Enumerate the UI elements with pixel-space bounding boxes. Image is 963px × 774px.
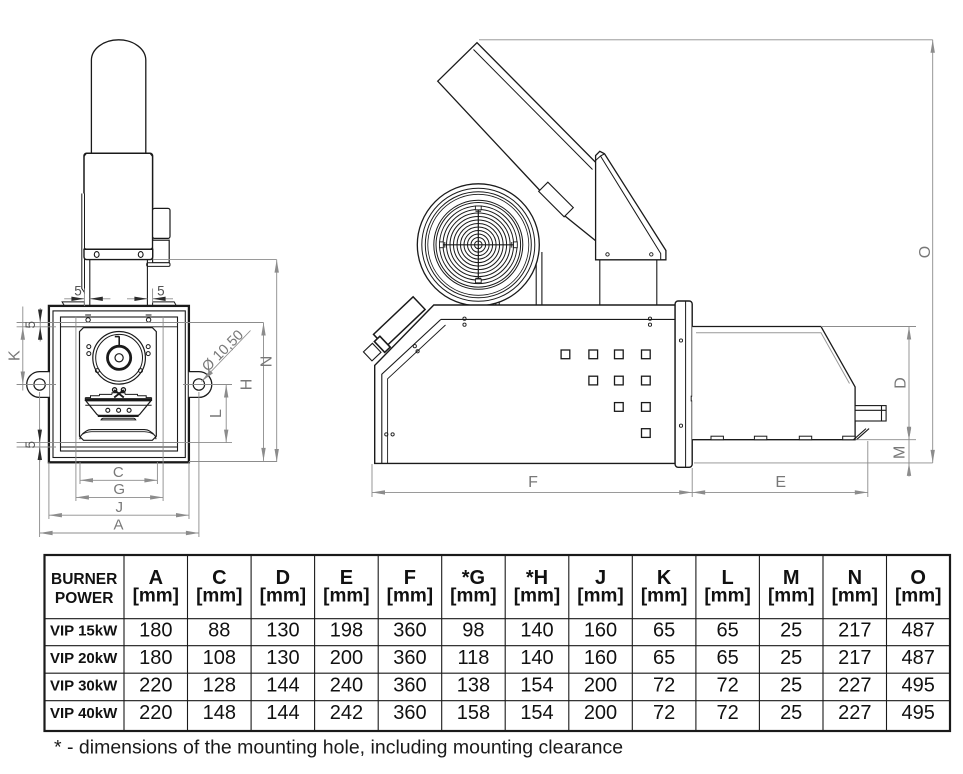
svg-text:[mm]: [mm]	[387, 586, 433, 607]
svg-text:180: 180	[139, 620, 172, 642]
svg-text:[mm]: [mm]	[832, 586, 878, 607]
svg-text:144: 144	[266, 674, 299, 696]
svg-text:[mm]: [mm]	[704, 586, 750, 607]
svg-text:242: 242	[330, 702, 363, 724]
svg-text:118: 118	[457, 647, 489, 669]
svg-text:200: 200	[584, 702, 617, 724]
svg-text:128: 128	[203, 674, 236, 696]
svg-text:65: 65	[716, 620, 738, 642]
svg-text:[mm]: [mm]	[768, 586, 814, 607]
svg-text:140: 140	[520, 620, 553, 642]
svg-text:72: 72	[653, 674, 675, 696]
svg-text:25: 25	[780, 674, 802, 696]
svg-text:M: M	[892, 446, 909, 459]
svg-text:E: E	[775, 474, 786, 491]
svg-text:[mm]: [mm]	[895, 586, 941, 607]
svg-text:360: 360	[393, 702, 426, 724]
svg-text:72: 72	[653, 702, 675, 724]
svg-text:130: 130	[266, 620, 299, 642]
svg-text:A: A	[113, 517, 123, 534]
svg-text:154: 154	[520, 674, 553, 696]
svg-text:VIP 20kW: VIP 20kW	[50, 650, 118, 667]
svg-text:F: F	[528, 474, 538, 491]
svg-text:72: 72	[716, 702, 738, 724]
svg-text:BURNER: BURNER	[51, 571, 117, 588]
svg-text:POWER: POWER	[55, 590, 114, 607]
svg-text:360: 360	[393, 647, 426, 669]
svg-text:5: 5	[23, 321, 38, 329]
svg-text:VIP 15kW: VIP 15kW	[50, 623, 118, 640]
svg-text:227: 227	[838, 674, 871, 696]
svg-text:[mm]: [mm]	[323, 586, 369, 607]
svg-text:[mm]: [mm]	[133, 586, 179, 607]
svg-text:L: L	[208, 409, 225, 418]
svg-text:160: 160	[584, 647, 617, 669]
svg-text:[mm]: [mm]	[196, 586, 242, 607]
svg-text:144: 144	[266, 702, 299, 724]
svg-text:160: 160	[584, 620, 617, 642]
svg-text:5: 5	[157, 284, 165, 299]
svg-text:VIP 40kW: VIP 40kW	[50, 705, 118, 722]
svg-text:[mm]: [mm]	[260, 586, 306, 607]
svg-text:495: 495	[902, 702, 935, 724]
svg-text:98: 98	[462, 620, 484, 642]
svg-text:487: 487	[902, 620, 935, 642]
svg-text:[mm]: [mm]	[641, 586, 687, 607]
svg-text:227: 227	[838, 702, 871, 724]
svg-text:200: 200	[330, 647, 363, 669]
svg-text:148: 148	[203, 702, 236, 724]
svg-text:[mm]: [mm]	[450, 586, 496, 607]
svg-text:25: 25	[780, 620, 802, 642]
svg-text:VIP 30kW: VIP 30kW	[50, 677, 118, 694]
svg-text:487: 487	[902, 647, 935, 669]
svg-text:D: D	[893, 377, 910, 389]
svg-text:O: O	[917, 246, 934, 258]
svg-text:200: 200	[584, 674, 617, 696]
svg-text:88: 88	[208, 620, 230, 642]
svg-text:360: 360	[393, 674, 426, 696]
svg-text:25: 25	[780, 647, 802, 669]
svg-text:108: 108	[203, 647, 236, 669]
svg-text:H: H	[239, 379, 256, 391]
svg-text:220: 220	[139, 702, 172, 724]
svg-text:J: J	[115, 499, 123, 516]
svg-text:K: K	[7, 350, 24, 361]
svg-text:5: 5	[74, 284, 82, 299]
svg-text:140: 140	[520, 647, 553, 669]
svg-text:65: 65	[653, 647, 675, 669]
svg-text:217: 217	[838, 620, 871, 642]
svg-text:[mm]: [mm]	[514, 586, 560, 607]
svg-text:N: N	[259, 356, 276, 368]
svg-text:* - dimensions of the mounting: * - dimensions of the mounting hole, inc…	[54, 737, 623, 759]
svg-text:72: 72	[716, 674, 738, 696]
svg-text:5: 5	[23, 441, 38, 449]
svg-text:G: G	[113, 481, 125, 498]
svg-text:220: 220	[139, 674, 172, 696]
svg-text:158: 158	[457, 702, 490, 724]
svg-text:240: 240	[330, 674, 363, 696]
svg-text:130: 130	[266, 647, 299, 669]
svg-text:25: 25	[780, 702, 802, 724]
svg-text:138: 138	[457, 674, 490, 696]
svg-text:217: 217	[838, 647, 871, 669]
svg-text:[mm]: [mm]	[577, 586, 623, 607]
svg-text:180: 180	[139, 647, 172, 669]
svg-text:154: 154	[520, 702, 553, 724]
svg-text:360: 360	[393, 620, 426, 642]
svg-text:495: 495	[902, 674, 935, 696]
svg-text:65: 65	[653, 620, 675, 642]
svg-text:C: C	[113, 464, 124, 481]
svg-text:198: 198	[330, 620, 363, 642]
svg-text:65: 65	[716, 647, 738, 669]
